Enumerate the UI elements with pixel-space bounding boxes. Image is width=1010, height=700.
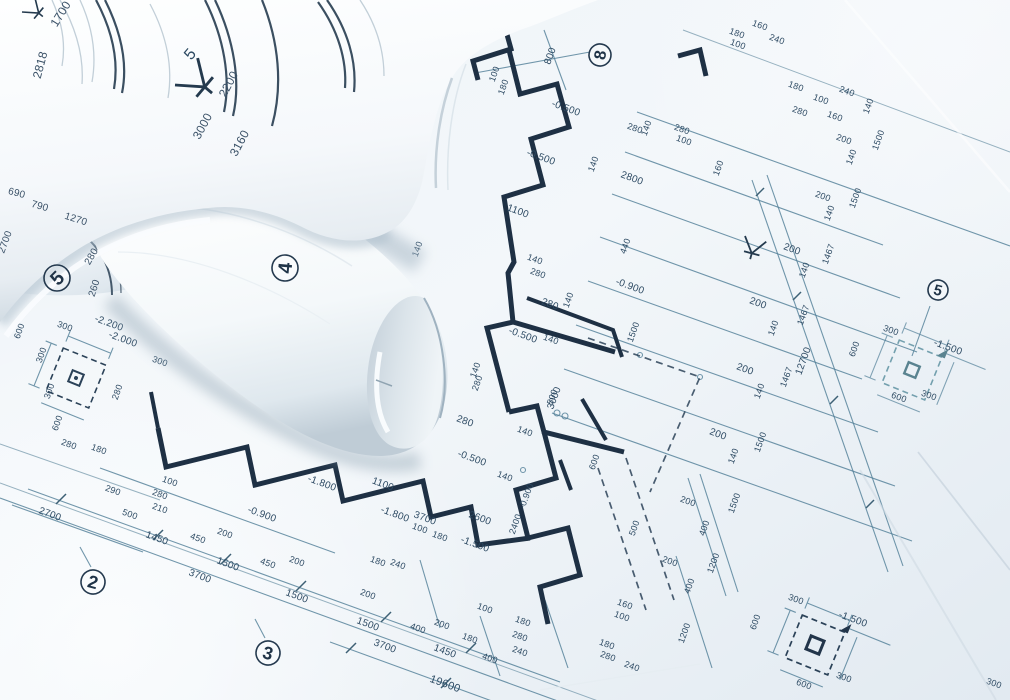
- blueprint-photo: 800-0.500100180-0.5001100280140140280018…: [0, 0, 1010, 700]
- grid-axis-label: 4: [274, 262, 297, 275]
- blueprint-photo-canvas: 800-0.500100180-0.5001100280140140280018…: [0, 0, 1010, 700]
